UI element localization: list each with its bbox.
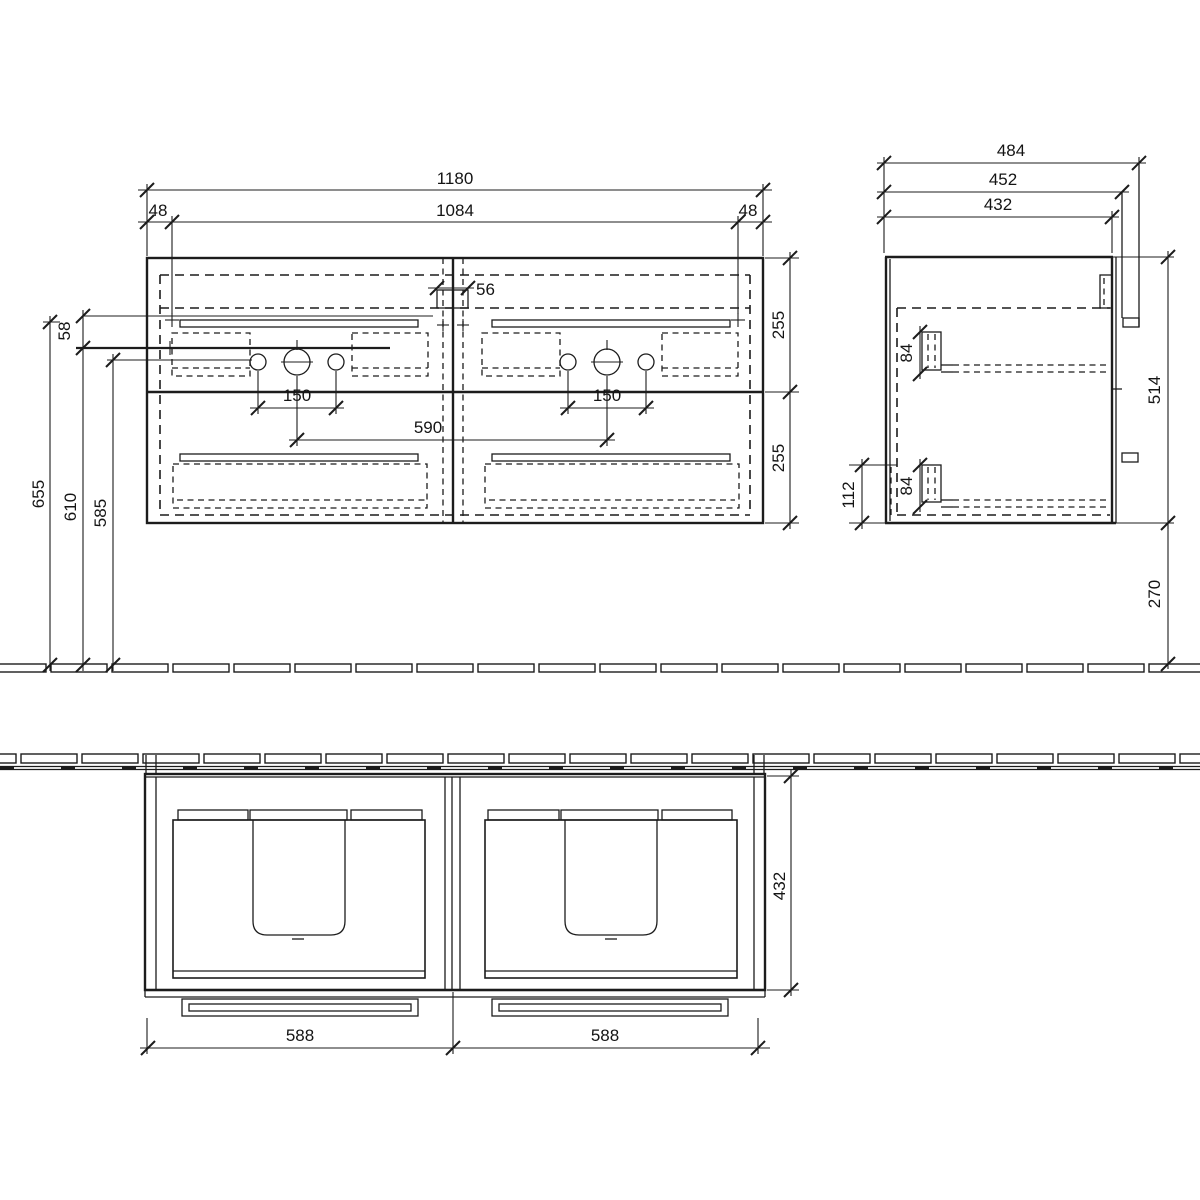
dim-height-to-top: 655 xyxy=(29,480,48,508)
side-wall-brackets xyxy=(1100,163,1139,462)
dim-fixing-centres: 1084 xyxy=(436,201,474,220)
side-hidden-lines xyxy=(891,308,1110,515)
dim-height-to-tap-line: 585 xyxy=(91,499,110,527)
dim-runner-top: 84 xyxy=(897,344,916,363)
dim-runner-bottom: 84 xyxy=(897,477,916,496)
dim-plan-carcass-depth: 432 xyxy=(770,872,789,900)
dim-fixing-drop: 58 xyxy=(55,322,74,341)
dim-depth-incl-back: 452 xyxy=(989,170,1017,189)
front-cabinet-outline xyxy=(147,258,763,523)
dim-right-door-width: 588 xyxy=(591,1026,619,1045)
side-view: 484 452 432 84 84 112 51 xyxy=(839,141,1175,671)
side-drawer-runners xyxy=(922,332,953,507)
front-dimensions: 1180 48 1084 48 56 255 255 xyxy=(29,169,799,672)
plan-view: 588 588 432 xyxy=(140,755,799,1055)
dim-bottom-drawer-height: 255 xyxy=(769,444,788,472)
dim-carcass-depth: 432 xyxy=(984,195,1012,214)
wall-tile-strip xyxy=(0,753,1200,770)
plan-right-bowl xyxy=(565,820,657,935)
plan-centre-divider xyxy=(445,777,460,990)
plan-left-drawer xyxy=(173,810,425,978)
dim-centre-gap: 56 xyxy=(476,280,495,299)
front-view: 1180 48 1084 48 56 255 255 xyxy=(29,169,799,672)
front-bottom-drawer-boxes xyxy=(173,464,739,508)
front-hidden-carcass-lines xyxy=(160,275,750,515)
dim-right-offset: 48 xyxy=(739,201,758,220)
dim-left-offset: 48 xyxy=(149,201,168,220)
technical-drawing-canvas: 1180 48 1084 48 56 255 255 xyxy=(0,0,1200,1200)
dim-height-to-rail: 610 xyxy=(61,493,80,521)
plan-left-bowl xyxy=(253,820,345,935)
dim-carcass-height: 514 xyxy=(1145,376,1164,404)
plan-right-drawer xyxy=(485,810,737,978)
dim-overall-width: 1180 xyxy=(437,169,474,188)
floor-tile-strip xyxy=(0,663,1200,673)
dim-left-door-width: 588 xyxy=(286,1026,314,1045)
plan-dimensions: 588 588 432 xyxy=(140,769,799,1055)
dim-floor-clearance: 270 xyxy=(1145,580,1164,608)
vanity-dimension-drawing: 1180 48 1084 48 56 255 255 xyxy=(0,0,1200,1200)
plan-door-fronts xyxy=(145,990,765,1016)
plan-cabinet-outline xyxy=(145,774,765,990)
dim-overall-depth: 484 xyxy=(997,141,1025,160)
dim-bottom-clearance: 112 xyxy=(839,481,858,508)
dim-bowl-centres: 590 xyxy=(414,418,442,437)
dim-top-drawer-height: 255 xyxy=(769,311,788,339)
